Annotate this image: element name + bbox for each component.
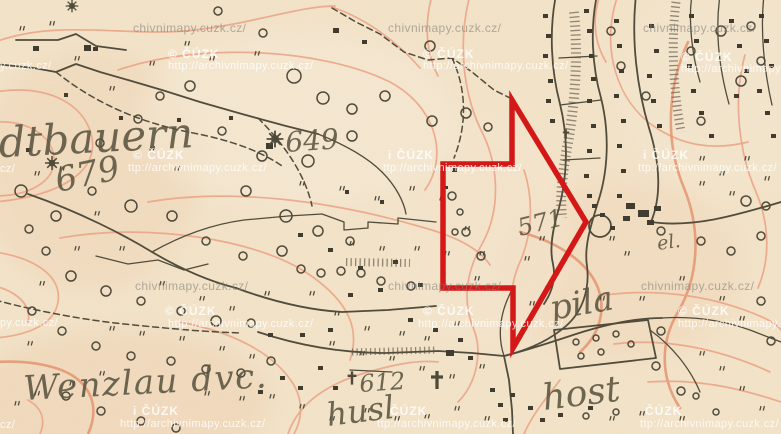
label-elevation-649: 649	[284, 122, 340, 159]
archival-map-viewport[interactable]: idtbauern 679 649 571 el. pila host husl…	[0, 0, 781, 434]
label-el-abbrev: el.	[656, 230, 682, 255]
map-canvas[interactable]: idtbauern 679 649 571 el. pila host husl…	[0, 0, 781, 434]
label-elevation-612: 612	[358, 367, 406, 398]
